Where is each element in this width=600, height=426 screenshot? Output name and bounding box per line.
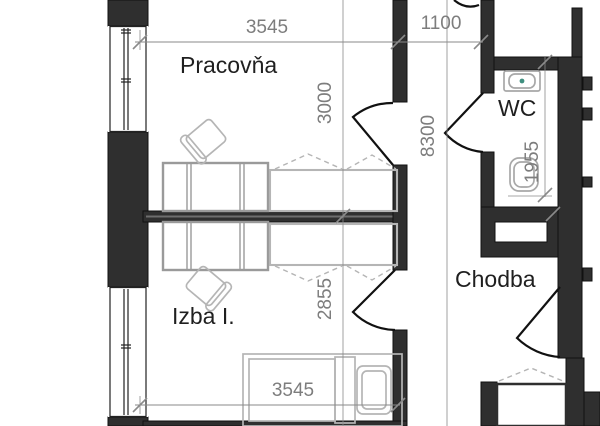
room-label-pracovna: Pracovňa xyxy=(180,52,277,78)
dim-corridor-width: 1100 xyxy=(421,13,462,34)
wall-right-stub-1 xyxy=(583,77,592,90)
wall-right-upper-thin xyxy=(572,8,582,57)
dim-total-depth: 8300 xyxy=(418,115,439,157)
wall-right-stub-2 xyxy=(583,108,592,120)
dim-bottom-room-width: 3545 xyxy=(272,380,314,401)
wall-right-corner xyxy=(584,392,600,426)
floor-plan: 3545 1100 3000 8300 2855 1955 3545 Praco… xyxy=(0,0,600,426)
wall-corridor-bottom xyxy=(393,330,407,426)
room-label-izba: Izba I. xyxy=(172,303,235,329)
wall-left-bottom xyxy=(108,417,148,426)
shaft-opening xyxy=(495,222,547,242)
wall-right-stub-4 xyxy=(583,268,592,281)
wall-right-stub-3 xyxy=(583,177,592,187)
wall-corridor-top xyxy=(393,0,407,102)
wall-right-main xyxy=(558,57,582,358)
wall-corridor-mid xyxy=(393,165,407,270)
room-label-chodba: Chodba xyxy=(455,266,536,292)
wall-left-top xyxy=(108,0,148,26)
floor-plan-canvas: 3545 1100 3000 8300 2855 1955 3545 Praco… xyxy=(0,0,600,426)
dim-pracovna-depth: 3000 xyxy=(315,82,336,124)
dim-wc-depth: 1955 xyxy=(522,141,543,183)
washbasin-drain xyxy=(520,79,525,84)
wall-right-lower xyxy=(566,358,584,426)
wall-left-middle xyxy=(108,132,148,287)
room-label-wc: WC xyxy=(498,95,536,121)
dim-top-room-width: 3545 xyxy=(246,17,288,38)
wall-bottomright-stub xyxy=(481,382,497,426)
wall-wc-left-top xyxy=(481,0,494,93)
dim-izba-depth: 2855 xyxy=(315,278,336,320)
